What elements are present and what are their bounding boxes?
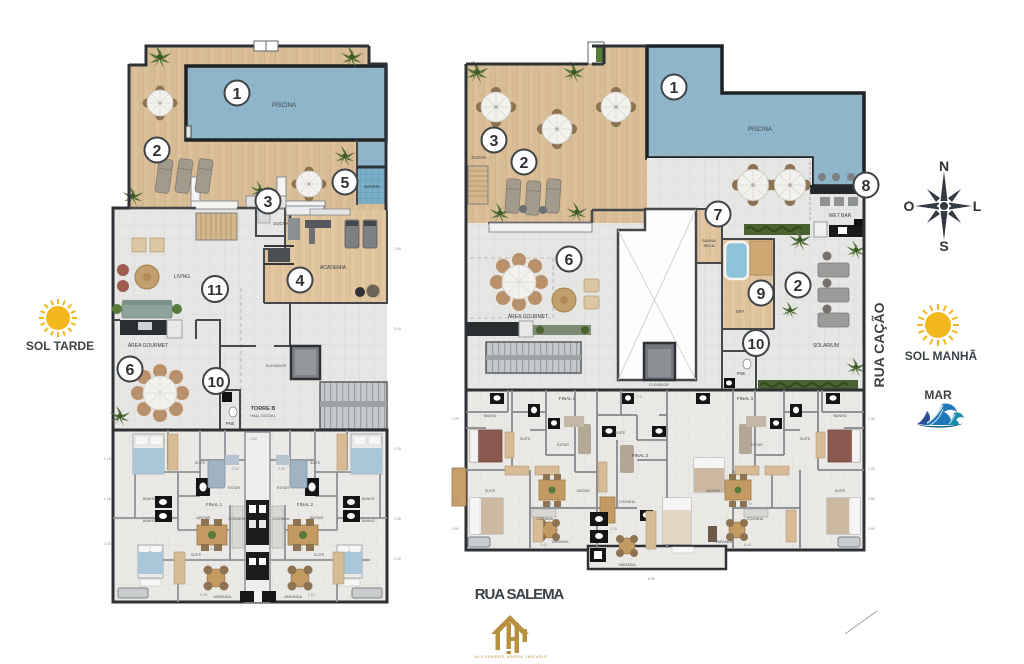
svg-text:9: 9 (757, 286, 766, 303)
svg-text:VARANDA: VARANDA (551, 540, 569, 544)
svg-text:PNE: PNE (737, 371, 746, 376)
svg-text:2.60: 2.60 (394, 247, 401, 251)
svg-text:RUA CAÇÃO: RUA CAÇÃO (870, 302, 887, 387)
svg-text:8: 8 (862, 178, 871, 195)
svg-text:ELEVADOR: ELEVADOR (649, 383, 669, 387)
svg-text:N: N (939, 158, 949, 174)
svg-text:2: 2 (794, 278, 803, 295)
svg-text:2.30: 2.30 (278, 467, 285, 471)
svg-text:COZINHA: COZINHA (228, 517, 246, 521)
svg-text:4.50: 4.50 (452, 497, 459, 501)
svg-text:ELEVADOR: ELEVADOR (266, 364, 287, 368)
svg-text:10: 10 (208, 374, 225, 391)
svg-text:VARANDA: VARANDA (715, 540, 733, 544)
svg-text:ESTAR: ESTAR (751, 443, 763, 447)
svg-text:3: 3 (490, 133, 499, 150)
svg-text:5.60: 5.60 (200, 593, 207, 597)
svg-text:SUITE: SUITE (310, 461, 321, 465)
svg-text:3.30: 3.30 (745, 502, 752, 506)
svg-text:6.85: 6.85 (648, 577, 655, 581)
svg-text:11: 11 (207, 282, 223, 299)
svg-text:3.35: 3.35 (394, 517, 401, 521)
svg-text:JANTAR: JANTAR (196, 516, 211, 520)
svg-text:SUITE: SUITE (191, 553, 202, 557)
svg-text:O: O (904, 198, 915, 214)
svg-text:COZINHA: COZINHA (747, 517, 764, 521)
svg-text:5.60: 5.60 (308, 593, 315, 597)
svg-text:6: 6 (565, 252, 574, 269)
svg-text:S: S (939, 238, 948, 254)
svg-text:SUITE: SUITE (615, 431, 626, 435)
svg-text:SUITE: SUITE (520, 437, 531, 441)
svg-text:6: 6 (126, 362, 135, 379)
svg-text:4.15: 4.15 (296, 547, 303, 551)
svg-text:PISCINA: PISCINA (272, 103, 296, 109)
svg-text:5.40: 5.40 (744, 543, 751, 547)
svg-text:BANHO: BANHO (143, 497, 156, 501)
svg-text:ÁREA GOURMET: ÁREA GOURMET (128, 342, 168, 349)
svg-text:FINAL 1: FINAL 1 (206, 502, 223, 507)
svg-text:BANHO: BANHO (834, 414, 847, 418)
svg-text:COZINHA: COZINHA (537, 517, 554, 521)
svg-text:DUCHA: DUCHA (274, 221, 289, 226)
svg-text:5: 5 (341, 175, 350, 192)
svg-text:SECA: SECA (704, 243, 715, 248)
svg-text:2.80: 2.80 (250, 437, 257, 441)
svg-text:VARANDA: VARANDA (213, 595, 232, 599)
svg-text:7.70: 7.70 (635, 395, 642, 399)
svg-text:7: 7 (714, 207, 723, 224)
svg-text:PNE: PNE (226, 421, 235, 426)
svg-text:MAR: MAR (924, 388, 952, 402)
svg-text:3.40: 3.40 (394, 327, 401, 331)
svg-text:2.28: 2.28 (104, 497, 111, 501)
svg-text:LIVING: LIVING (174, 274, 191, 280)
svg-text:SUITE: SUITE (800, 437, 811, 441)
svg-text:4.15: 4.15 (210, 547, 217, 551)
svg-text:10: 10 (748, 336, 765, 353)
svg-text:ESTAR: ESTAR (277, 486, 290, 490)
svg-text:2: 2 (520, 155, 529, 172)
svg-text:JANTAR: JANTAR (706, 489, 720, 493)
svg-text:3.30: 3.30 (545, 502, 552, 506)
svg-text:SOLARIUM: SOLARIUM (813, 343, 839, 349)
svg-text:3.00: 3.00 (104, 542, 111, 546)
svg-text:BANHO: BANHO (484, 414, 497, 418)
svg-text:FINAL 1: FINAL 1 (559, 396, 576, 401)
svg-text:BANHO: BANHO (362, 497, 375, 501)
svg-text:2.20: 2.20 (104, 457, 111, 461)
svg-text:SUITE: SUITE (485, 489, 496, 493)
svg-text:ESTAR: ESTAR (557, 443, 569, 447)
svg-text:VARANDA: VARANDA (284, 595, 303, 599)
svg-text:SPA: SPA (736, 309, 745, 314)
svg-text:SUITE: SUITE (314, 553, 325, 557)
svg-text:4: 4 (296, 273, 305, 290)
svg-text:L: L (973, 198, 982, 214)
svg-text:FINAL 3: FINAL 3 (737, 396, 754, 401)
svg-text:HALL SOCIAL: HALL SOCIAL (250, 413, 276, 418)
svg-text:2.20: 2.20 (394, 447, 401, 451)
svg-text:1: 1 (670, 80, 679, 97)
svg-text:VARANDA: VARANDA (618, 563, 636, 567)
svg-text:BANHO: BANHO (362, 519, 375, 523)
svg-text:BANHO: BANHO (143, 519, 156, 523)
svg-text:TORRE B: TORRE B (251, 406, 276, 412)
svg-text:ALEXANDRE ABREU IMÓVEIS: ALEXANDRE ABREU IMÓVEIS (475, 654, 548, 659)
svg-text:RUA SALEMA: RUA SALEMA (475, 586, 565, 603)
svg-text:2.26: 2.26 (868, 467, 875, 471)
svg-text:2: 2 (153, 143, 162, 160)
svg-text:WET BAR: WET BAR (829, 213, 852, 219)
svg-text:SAUNA: SAUNA (364, 184, 380, 189)
svg-text:PISCINA: PISCINA (748, 127, 772, 133)
svg-text:4.50: 4.50 (868, 497, 875, 501)
svg-text:2.20: 2.20 (452, 467, 459, 471)
svg-text:2.29: 2.29 (452, 417, 459, 421)
svg-text:ACADEMIA: ACADEMIA (320, 265, 347, 271)
svg-text:DUCHA: DUCHA (472, 155, 487, 160)
svg-text:SUITE: SUITE (195, 461, 206, 465)
svg-text:SOL TARDE: SOL TARDE (26, 339, 94, 353)
svg-text:FINAL 2: FINAL 2 (297, 502, 314, 507)
svg-text:2.60: 2.60 (868, 527, 875, 531)
svg-text:JANTAR: JANTAR (309, 516, 324, 520)
svg-text:2.30: 2.30 (868, 417, 875, 421)
svg-text:COZINHA: COZINHA (619, 500, 636, 504)
svg-text:SUITE: SUITE (835, 489, 846, 493)
svg-text:ESTAR: ESTAR (228, 486, 241, 490)
svg-text:FINAL 2: FINAL 2 (632, 453, 649, 458)
svg-text:1: 1 (233, 86, 242, 103)
svg-text:3: 3 (264, 194, 273, 211)
svg-text:5.40: 5.40 (540, 543, 547, 547)
svg-text:3.18: 3.18 (610, 527, 617, 531)
svg-text:JANTAR: JANTAR (576, 489, 590, 493)
svg-text:COZINHA: COZINHA (272, 517, 290, 521)
svg-text:2.30: 2.30 (232, 467, 239, 471)
svg-text:ÁREA GOURMET: ÁREA GOURMET (508, 313, 548, 320)
svg-text:SOL MANHÃ: SOL MANHÃ (905, 348, 978, 363)
svg-text:2.60: 2.60 (452, 527, 459, 531)
svg-text:2.40: 2.40 (394, 557, 401, 561)
